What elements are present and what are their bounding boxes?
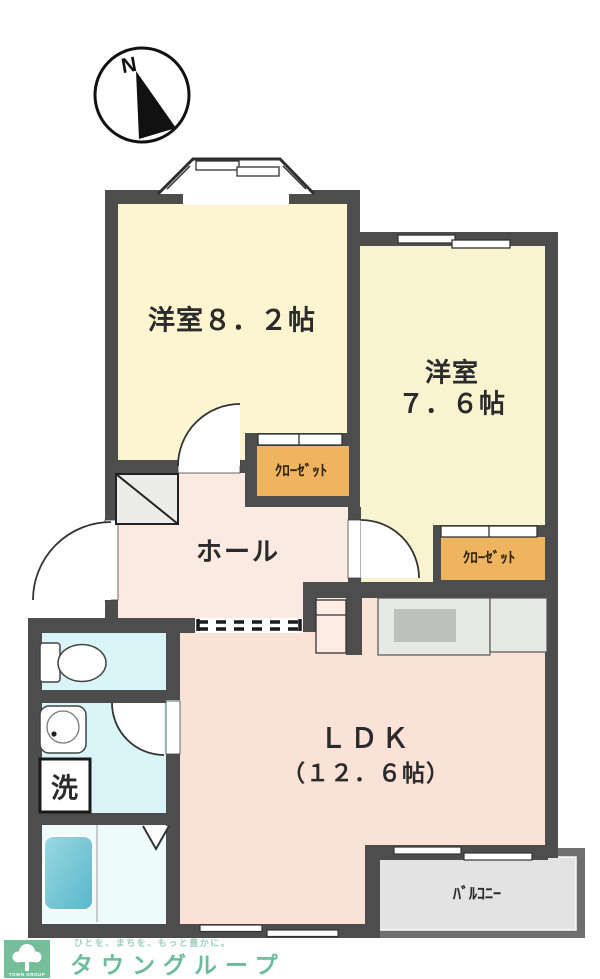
compass-icon <box>95 48 189 142</box>
entrance-door <box>33 520 118 600</box>
refrigerator-space <box>316 600 346 653</box>
sliding-partition <box>195 618 303 633</box>
washbasin-icon <box>40 706 86 753</box>
closet-1-label: ｸﾛｰｾﾞｯﾄ <box>275 460 328 481</box>
bathtub-icon <box>44 825 97 922</box>
floor-plan <box>0 0 600 979</box>
hall-label: ホール <box>196 532 280 569</box>
closet-2-label: ｸﾛｰｾﾞｯﾄ <box>463 547 516 568</box>
town-group-logo: TOWN GROUP <box>4 940 50 978</box>
room-label-western-8-2: 洋室８．２帖 <box>148 299 316 338</box>
logo-text: TOWN GROUP <box>4 972 50 977</box>
shoe-cabinet <box>116 474 178 524</box>
footer-brand: タウングループ <box>70 946 286 979</box>
kitchen-counter <box>378 598 547 655</box>
laundry-label: 洗 <box>51 767 79 806</box>
toilet-icon <box>40 643 106 682</box>
ldk-size-label: （１２．６帖） <box>282 754 450 788</box>
room-label-western-7-6-size: ７．６帖 <box>398 384 506 421</box>
floorplan-page: N 洋室８．２帖 洋室 ７．６帖 ｸﾛｰｾﾞｯﾄ ｸﾛｰｾﾞｯﾄ ホール ＬＤＫ… <box>0 0 600 979</box>
ldk-label: ＬＤＫ <box>320 717 413 756</box>
balcony-label: ﾊﾞﾙｺﾆｰ <box>453 880 501 904</box>
